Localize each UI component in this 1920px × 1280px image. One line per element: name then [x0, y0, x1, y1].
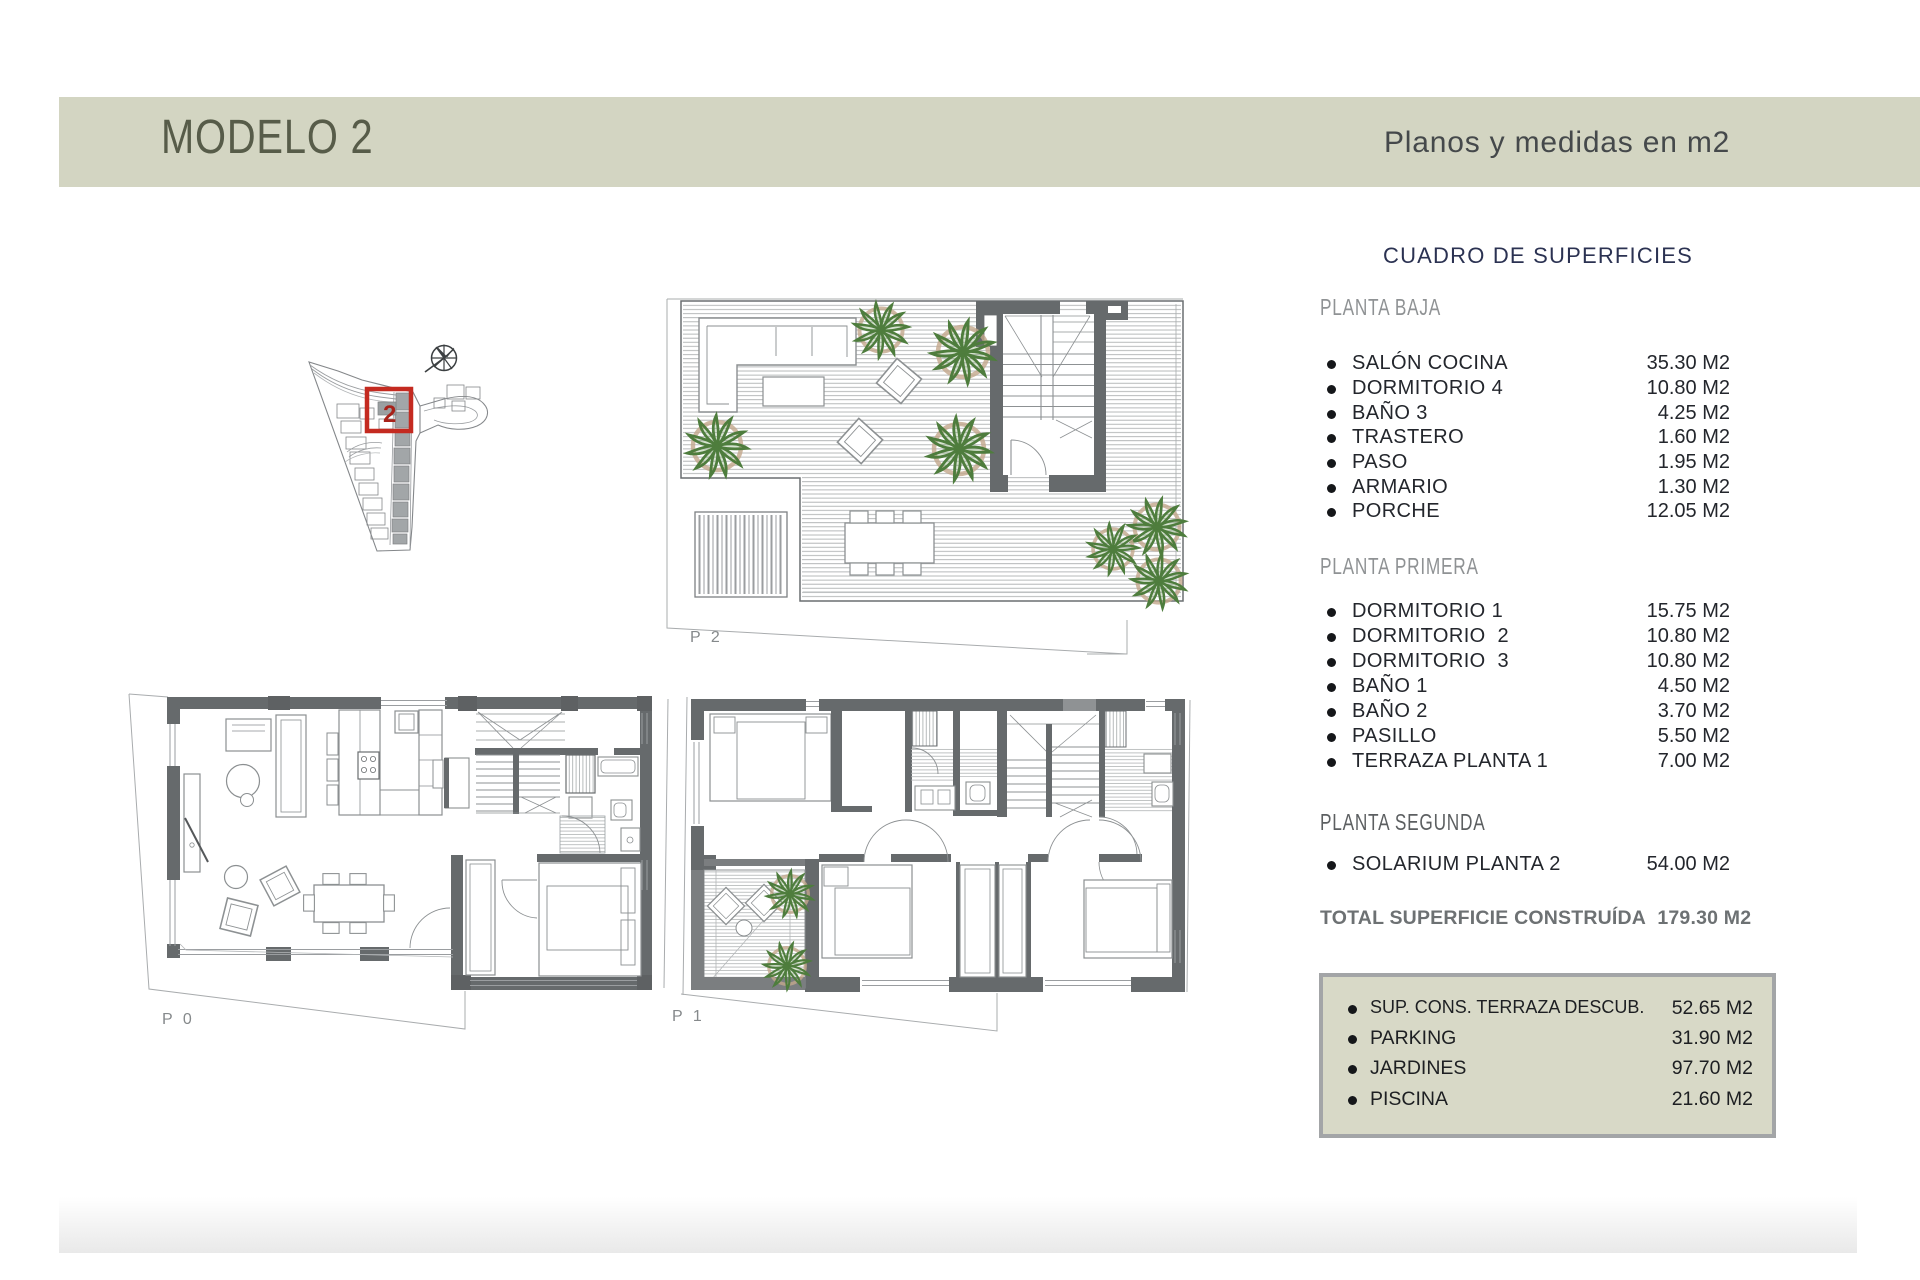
svg-text:2: 2	[383, 401, 396, 428]
svg-text:P 1: P 1	[672, 1008, 705, 1025]
svg-text:P 2: P 2	[690, 629, 723, 646]
svg-text:P 0: P 0	[162, 1011, 195, 1028]
